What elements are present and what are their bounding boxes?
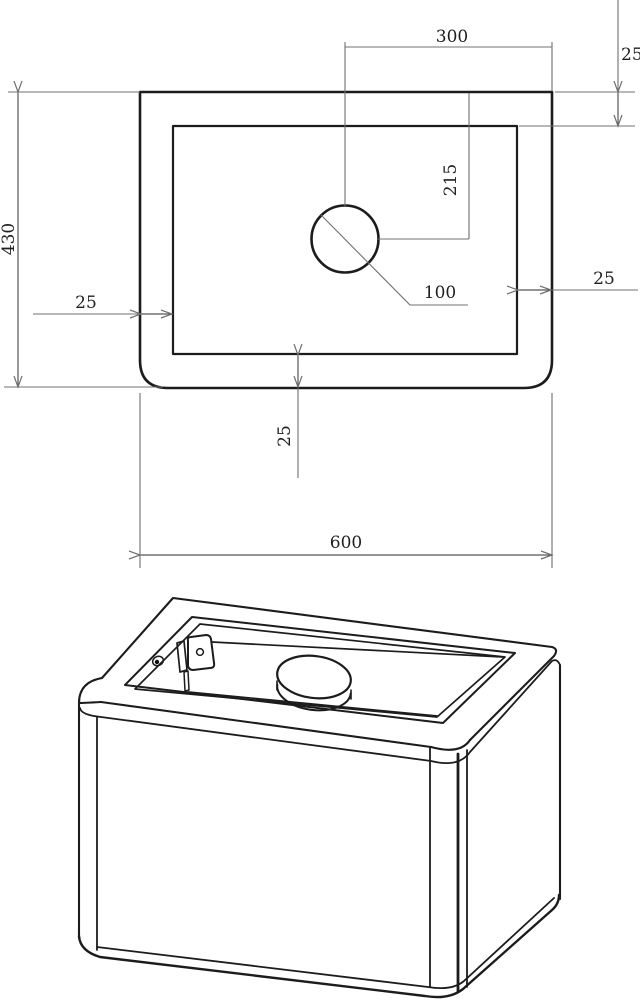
iso-recess-floor-back-edge [212,642,503,657]
dim-label-25-left: 25 [75,293,97,313]
dim-25-bottom: 25 [275,355,298,478]
isometric-view [79,598,560,997]
dim-25-top-right: 25 [519,0,640,126]
top-view: 300 25 430 215 100 [0,0,640,568]
dim-label-300: 300 [436,27,468,47]
iso-bracket-strip [184,671,189,691]
iso-top-band [80,660,560,763]
iso-bottom-outer-edge [79,895,559,997]
dim-label-215: 215 [441,164,461,196]
iso-bracket-plate [188,635,214,670]
dim-100: 100 [321,215,468,305]
dim-label-100: 100 [424,283,456,303]
technical-drawing: 300 25 430 215 100 [0,0,640,1000]
dim-215: 215 [378,93,469,239]
dim-25-right: 25 [518,269,638,290]
dim-label-430: 430 [0,223,19,255]
dim-label-25-right: 25 [593,269,615,289]
iso-hole-top-rim [275,652,354,703]
iso-screw-dot [155,660,159,664]
dim-600: 600 [140,393,552,568]
dim-430: 430 [0,92,163,387]
drawing-canvas: 300 25 430 215 100 [0,0,640,1000]
dim-label-600: 600 [330,533,362,553]
iso-recess-lip-outer [125,617,515,723]
iso-top-right-edge [470,647,556,740]
iso-front-right-corner-arc [431,740,470,750]
dim-label-25-bottom: 25 [275,425,295,447]
iso-front-left-corner-arc [79,678,102,703]
iso-bottom-inner-edge [97,898,554,988]
iso-bracket-hole [197,649,204,656]
dim-25-left: 25 [33,293,172,314]
dim-label-25-top: 25 [621,45,640,65]
iso-recess-floor-front-edge [188,692,437,716]
